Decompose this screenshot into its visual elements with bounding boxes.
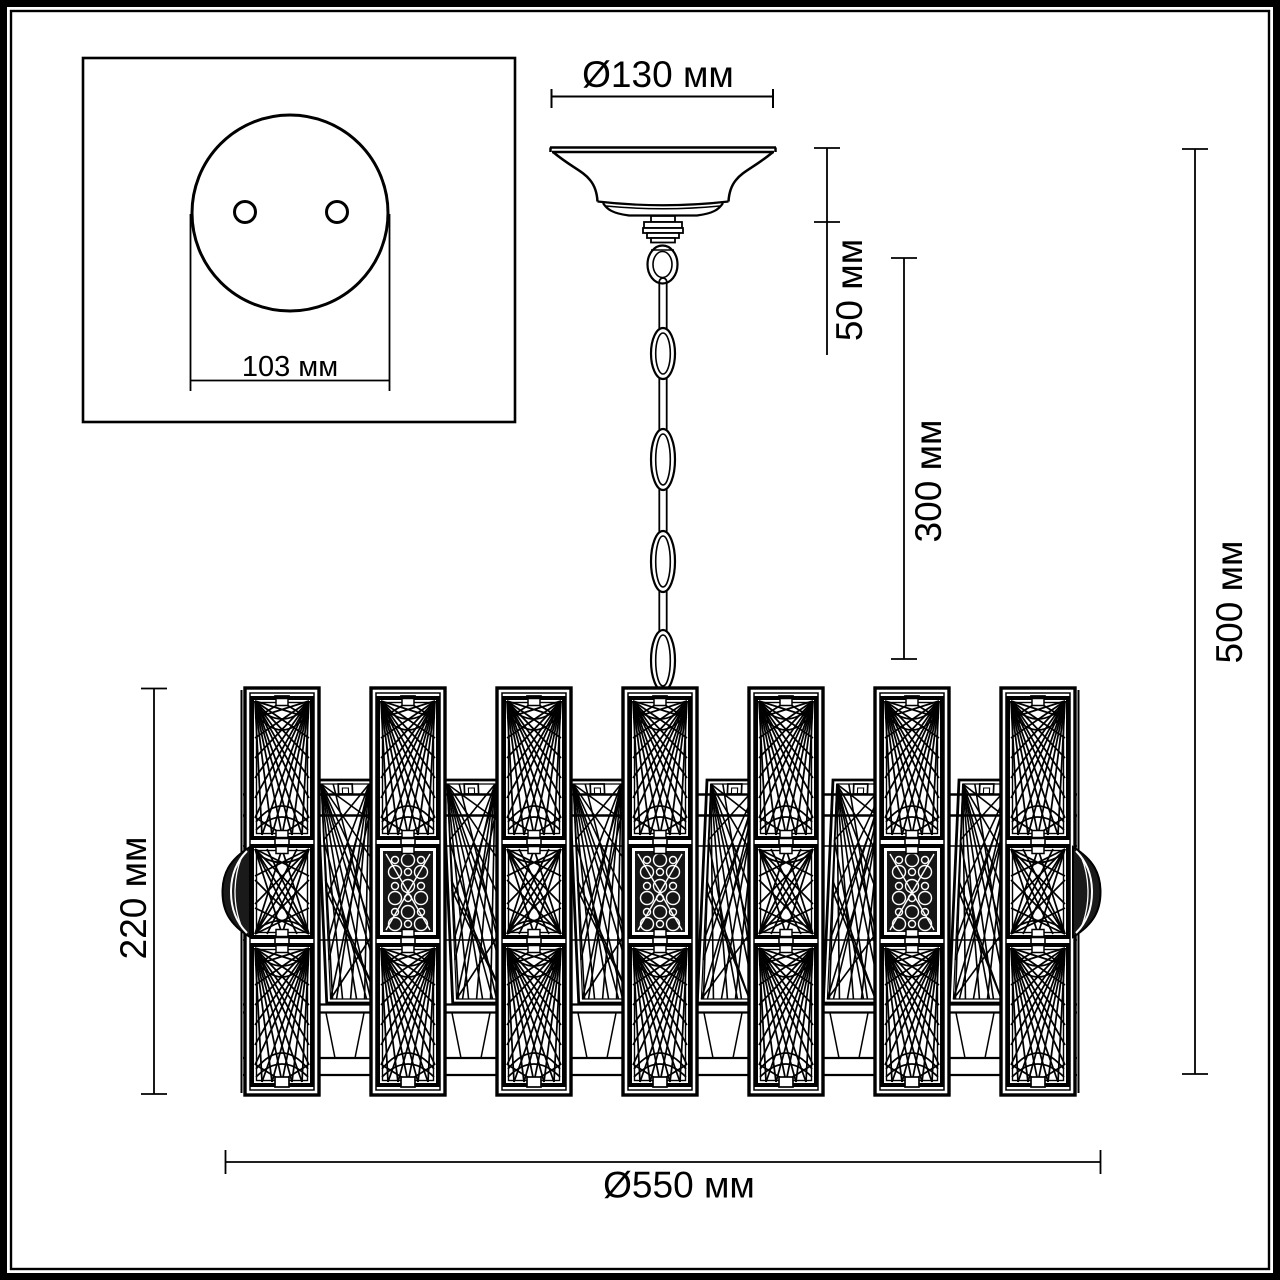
svg-text:Ø550 мм: Ø550 мм [603, 1165, 755, 1206]
svg-text:50 мм: 50 мм [829, 239, 870, 341]
svg-text:103 мм: 103 мм [242, 351, 338, 383]
svg-text:Ø130 мм: Ø130 мм [582, 54, 734, 95]
svg-text:500 мм: 500 мм [1209, 541, 1250, 664]
svg-text:300 мм: 300 мм [908, 420, 949, 543]
svg-text:220 мм: 220 мм [113, 837, 154, 960]
